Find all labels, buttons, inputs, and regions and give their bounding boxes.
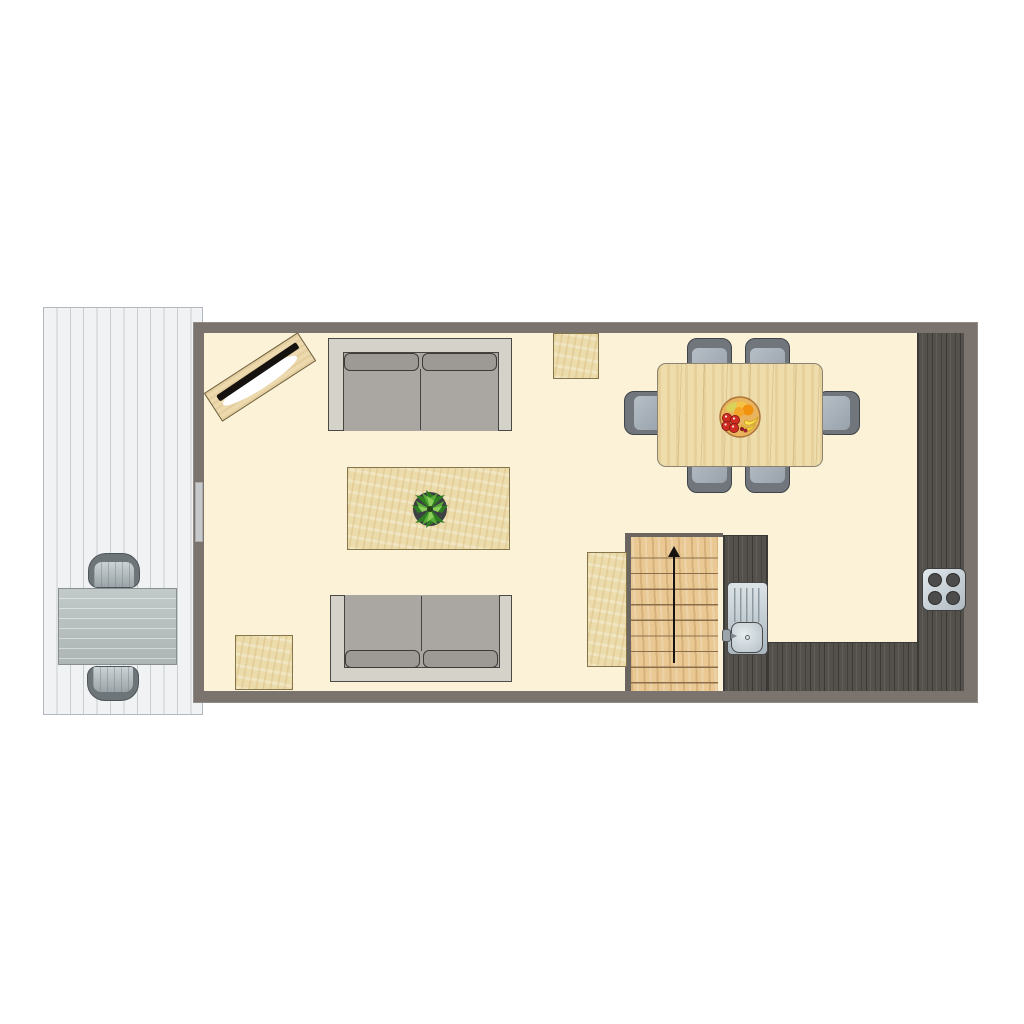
chair-seat	[821, 396, 850, 430]
burner-icon	[946, 591, 960, 605]
floor-plan	[0, 0, 1024, 1024]
deck-chair	[88, 553, 140, 588]
stair-arrow-head-icon	[668, 546, 680, 557]
sofa-back-cushion	[344, 353, 419, 371]
fruit-bowl-icon	[718, 395, 762, 439]
deck-table	[58, 588, 177, 665]
faucet-icon	[722, 629, 731, 642]
kitchen-counter-right	[917, 333, 964, 691]
sofa-back-cushion	[345, 650, 420, 668]
kitchen-counter-bottom	[768, 642, 917, 691]
staircase	[631, 537, 718, 691]
sofa-seat-divider	[421, 596, 422, 651]
deck-chair-seat	[94, 562, 134, 587]
burner-icon	[946, 573, 960, 587]
faucet-spout	[731, 633, 737, 639]
deck-door	[195, 482, 203, 542]
square-mat	[235, 635, 293, 690]
runner-mat	[587, 552, 627, 667]
potted-plant-icon	[408, 487, 452, 531]
sink-drainboard	[734, 588, 761, 622]
square-mat	[553, 333, 599, 379]
cooktop	[922, 568, 966, 611]
sofa-back-cushion	[422, 353, 497, 371]
sofa	[328, 338, 512, 431]
dining-chair	[820, 391, 860, 435]
sofa-back-cushion	[423, 650, 498, 668]
kitchen-sink	[727, 582, 768, 655]
burner-icon	[928, 591, 942, 605]
sink-drain	[745, 635, 750, 640]
sofa-seat-divider	[420, 369, 421, 430]
stair-direction-arrow	[673, 555, 675, 663]
burner-icon	[928, 573, 942, 587]
deck-chair	[87, 666, 139, 701]
living-room-floor	[204, 333, 964, 691]
deck-chair-seat	[93, 667, 133, 692]
sofa	[330, 595, 512, 682]
